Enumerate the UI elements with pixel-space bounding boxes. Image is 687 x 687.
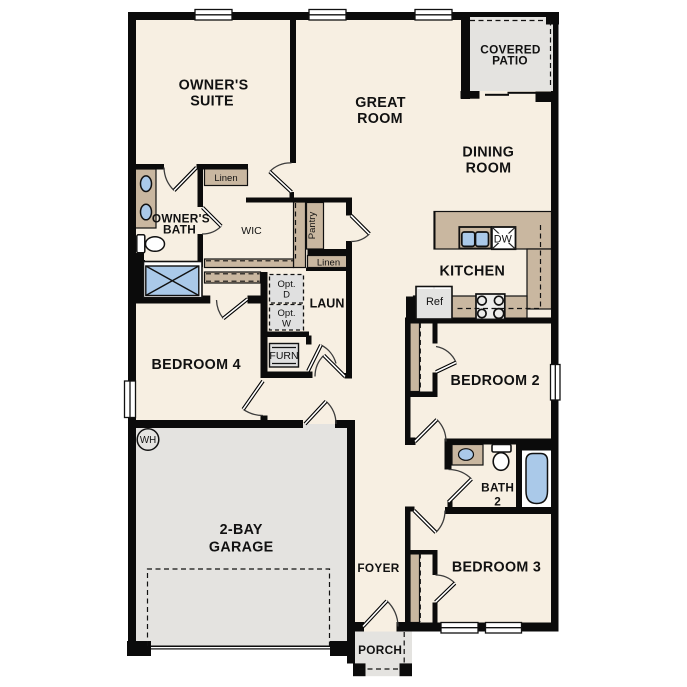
svg-text:Linen: Linen	[317, 258, 340, 269]
svg-text:OWNER'S: OWNER'S	[179, 78, 249, 94]
svg-text:LAUN: LAUN	[310, 297, 345, 311]
svg-text:BATH: BATH	[163, 223, 196, 237]
svg-text:PORCH: PORCH	[358, 643, 402, 657]
svg-text:FURN: FURN	[269, 350, 298, 362]
svg-text:Ref: Ref	[426, 296, 444, 308]
svg-text:KITCHEN: KITCHEN	[439, 263, 505, 279]
svg-text:ROOM: ROOM	[466, 161, 512, 177]
svg-text:SUITE: SUITE	[190, 93, 234, 109]
svg-text:Pantry: Pantry	[307, 212, 318, 240]
svg-text:PATIO: PATIO	[492, 53, 528, 67]
svg-text:GARAGE: GARAGE	[209, 540, 274, 556]
svg-text:D: D	[283, 290, 290, 301]
svg-text:2: 2	[494, 495, 501, 509]
svg-text:BEDROOM 3: BEDROOM 3	[452, 560, 541, 576]
svg-text:DW: DW	[494, 233, 513, 245]
svg-text:BEDROOM 2: BEDROOM 2	[451, 373, 540, 389]
svg-text:Opt.: Opt.	[278, 279, 296, 290]
svg-text:FOYER: FOYER	[357, 561, 399, 575]
svg-text:BATH: BATH	[481, 481, 514, 495]
svg-text:GREAT: GREAT	[355, 95, 405, 111]
svg-text:Linen: Linen	[214, 173, 237, 184]
svg-text:WH: WH	[140, 435, 156, 446]
svg-text:BEDROOM 4: BEDROOM 4	[152, 357, 241, 373]
svg-text:2-BAY: 2-BAY	[220, 522, 263, 538]
svg-text:DINING: DINING	[462, 145, 514, 161]
svg-text:WIC: WIC	[241, 225, 262, 237]
svg-text:W: W	[282, 319, 291, 330]
svg-text:Opt.: Opt.	[278, 308, 296, 319]
svg-text:ROOM: ROOM	[357, 111, 403, 127]
